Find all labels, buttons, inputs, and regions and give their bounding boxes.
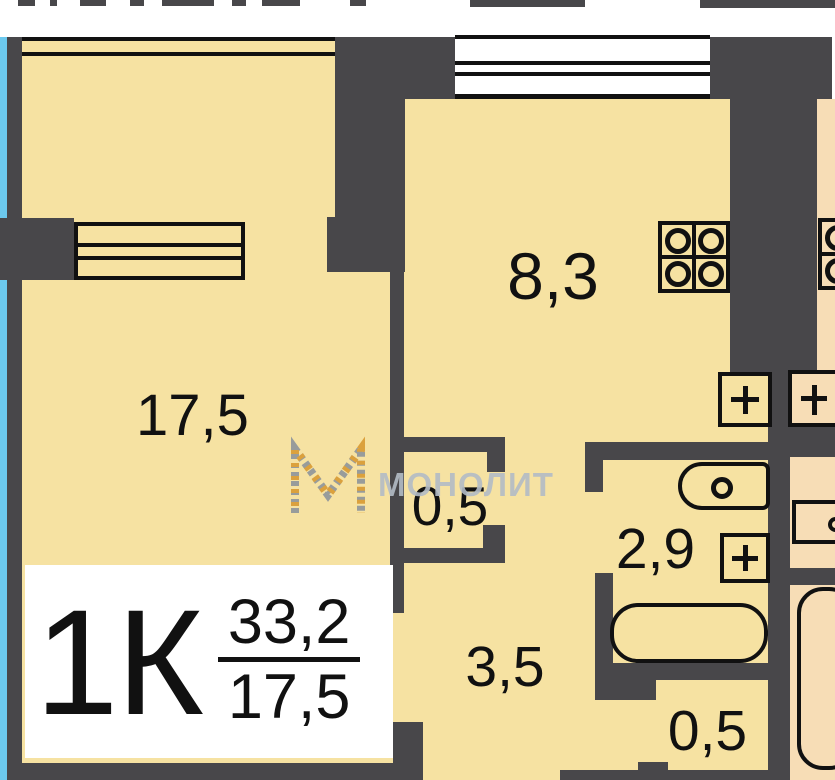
room-label-hallway: 3,5 [440, 634, 570, 700]
adjacent-floor-fragment [470, 0, 585, 7]
adjacent-floor-fragment [232, 0, 246, 6]
watermark-logo-icon [288, 435, 370, 515]
bathtub-icon [610, 603, 768, 663]
wall [327, 217, 405, 272]
window-frame-line [455, 61, 710, 65]
exterior-strip [0, 37, 7, 780]
closet-wall [404, 437, 505, 452]
adjacent-floor-fragment [80, 0, 106, 6]
wall [638, 762, 668, 780]
vent-plus-icon [718, 372, 772, 427]
burner-icon [665, 261, 691, 287]
closet-wall [400, 548, 505, 563]
wall [710, 37, 832, 99]
wall [405, 37, 458, 99]
area-fraction: 33,2 17,5 [218, 589, 361, 730]
radiator-line [78, 256, 241, 260]
wall [393, 722, 423, 780]
radiator-line [78, 243, 241, 247]
adjacent-floor-fragment [262, 0, 300, 6]
wall [560, 770, 790, 780]
adjacent-floor-fragment [50, 0, 57, 6]
total-area-label: 33,2 [218, 589, 361, 662]
burner-icon [698, 261, 724, 287]
bathroom-wall [585, 460, 603, 492]
room-label-storage: 0,5 [645, 698, 770, 764]
watermark-text: МОНОЛИТ [378, 466, 554, 504]
wall [790, 568, 835, 585]
bathroom-wall [613, 663, 770, 680]
plus-bar [743, 545, 748, 570]
stove-divider [662, 255, 726, 259]
toilet-flush-icon [711, 477, 733, 499]
wall [7, 37, 22, 780]
unit-info-box: 1К 33,2 17,5 [25, 565, 393, 758]
adjacent-floor-fragment [700, 0, 835, 8]
wall [768, 427, 790, 780]
wall [22, 763, 393, 780]
stove-divider [822, 252, 835, 256]
adjacent-floor-fragment [350, 0, 366, 6]
adjacent-floor-fragment [18, 0, 35, 6]
burner-icon [665, 228, 691, 254]
wall [790, 423, 835, 457]
adjacent-floor-fragment [130, 0, 144, 6]
toilet-icon [678, 462, 770, 510]
radiator-icon [74, 222, 245, 280]
room-label-kitchen: 8,3 [488, 238, 618, 314]
kitchen-window [455, 35, 710, 99]
room-label-living: 17,5 [110, 382, 275, 449]
stove-icon [658, 221, 730, 293]
neighbor-sink-icon [792, 500, 835, 544]
burner-icon [825, 225, 835, 251]
sink-drain-icon [828, 517, 835, 532]
bathroom-wall [585, 442, 772, 460]
plus-bar [743, 386, 748, 414]
adjacent-floor-fragment [162, 0, 214, 6]
room-label-bathroom: 2,9 [593, 516, 718, 582]
unit-type-label: 1К [25, 587, 202, 737]
wall [0, 218, 74, 280]
burner-icon [825, 258, 835, 284]
floor-plan: 17,5 8,3 0,5 2,9 3,5 0,5 МОНОЛИТ 1К 33,2… [0, 0, 835, 780]
plus-bar [812, 385, 817, 414]
neighbor-vent-plus-icon [788, 370, 835, 427]
bathroom-vent-plus-icon [720, 533, 770, 583]
wall [730, 99, 817, 372]
neighbor-bathtub-icon [797, 587, 835, 770]
burner-icon [698, 228, 724, 254]
neighbor-stove-icon [818, 218, 835, 290]
bathroom-wall [595, 680, 656, 700]
window-frame-line [455, 72, 710, 76]
living-area-label: 17,5 [228, 662, 351, 730]
living-room-window [22, 37, 335, 56]
